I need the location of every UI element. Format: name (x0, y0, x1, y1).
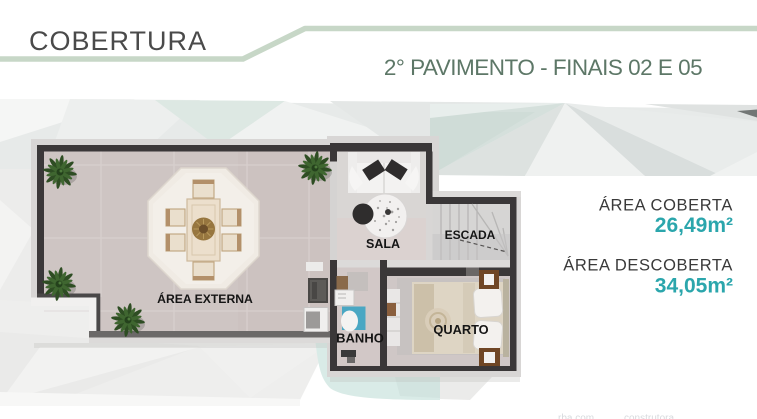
svg-text:ESCADA: ESCADA (445, 228, 496, 242)
svg-text:34,05m²: 34,05m² (655, 275, 733, 298)
svg-text:QUARTO: QUARTO (433, 322, 488, 337)
svg-text:ÁREA DESCOBERTA: ÁREA DESCOBERTA (563, 256, 733, 275)
svg-text:2° PAVIMENTO - FINAIS 02 E 05: 2° PAVIMENTO - FINAIS 02 E 05 (384, 55, 702, 80)
svg-text:26,49m²: 26,49m² (655, 214, 733, 237)
svg-text:BANHO: BANHO (336, 331, 384, 346)
svg-text:ÁREA COBERTA: ÁREA COBERTA (599, 196, 733, 215)
svg-text:construtora: construtora (624, 413, 674, 419)
svg-text:COBERTURA: COBERTURA (29, 26, 207, 56)
svg-text:ÁREA EXTERNA: ÁREA EXTERNA (157, 291, 253, 306)
svg-text:rba.com: rba.com (558, 413, 594, 419)
svg-text:SALA: SALA (366, 237, 400, 251)
